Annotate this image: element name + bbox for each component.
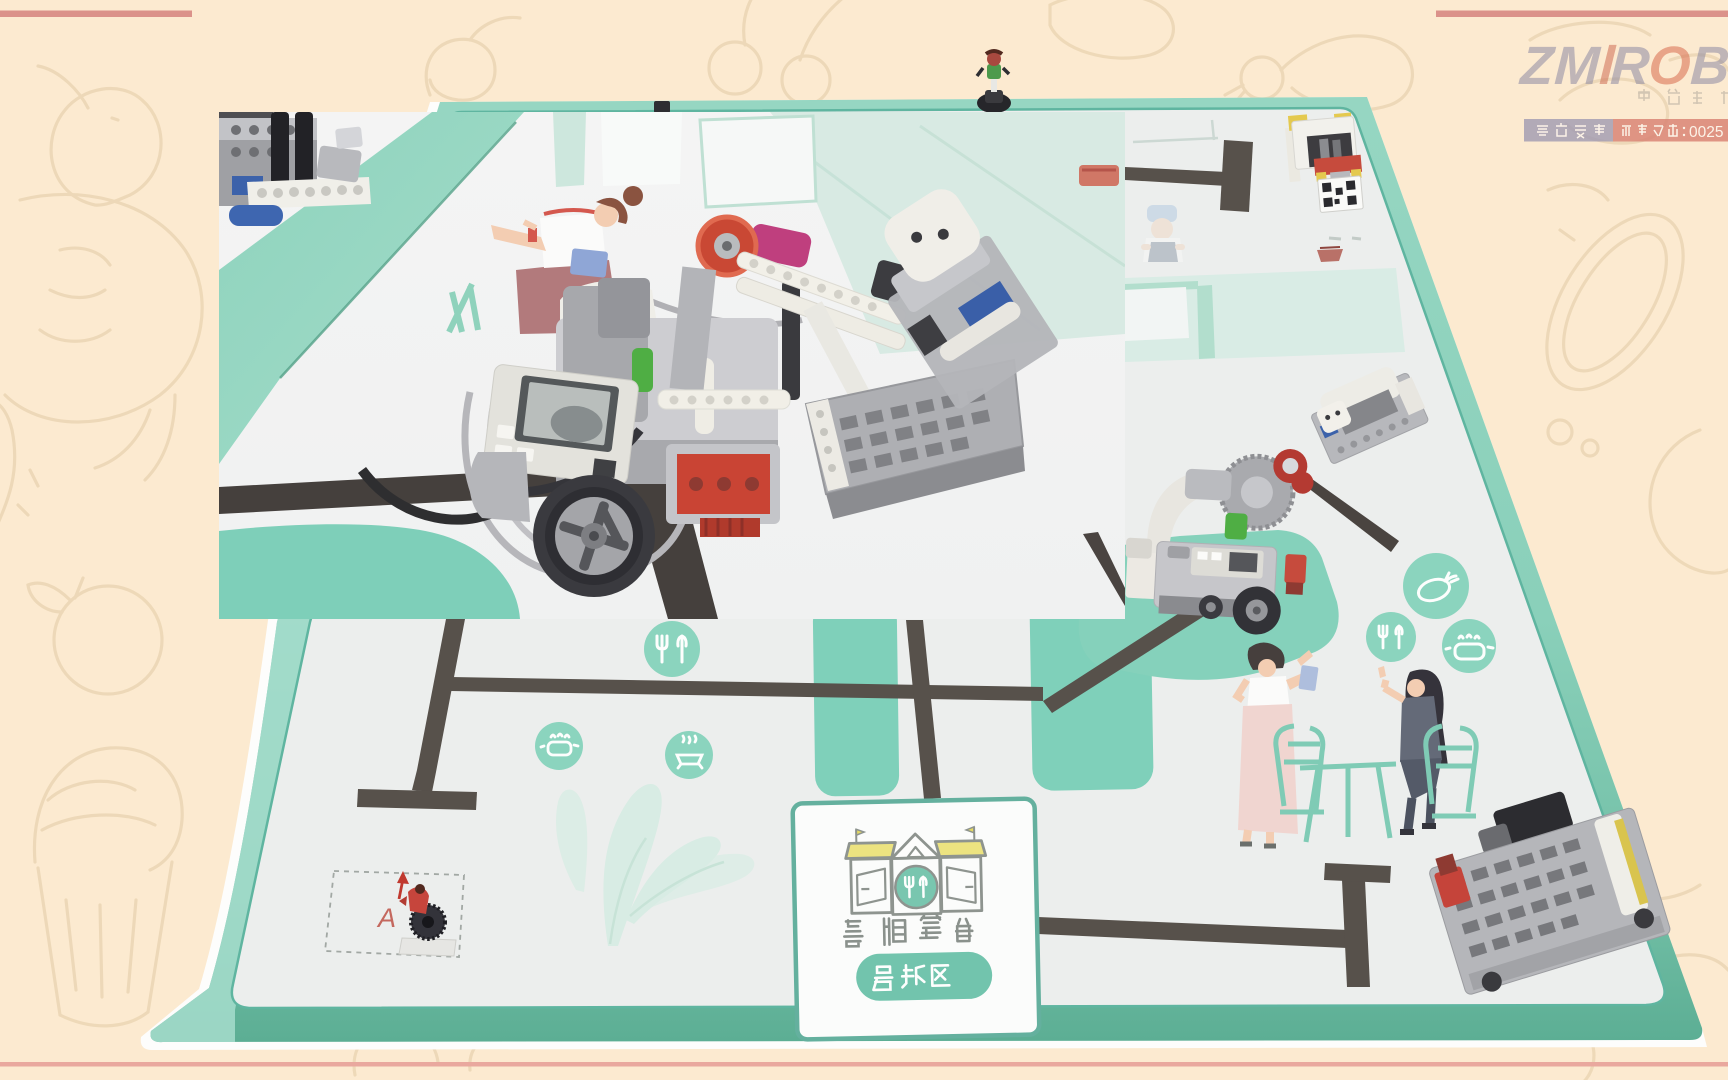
svg-text:R: R bbox=[1609, 36, 1651, 96]
svg-text:0025: 0025 bbox=[1689, 124, 1723, 141]
svg-text:O: O bbox=[1647, 36, 1692, 96]
svg-text:B: B bbox=[1689, 36, 1728, 96]
svg-text:A: A bbox=[376, 903, 396, 933]
svg-text:M: M bbox=[1553, 36, 1602, 96]
svg-text:Z: Z bbox=[1517, 36, 1557, 96]
